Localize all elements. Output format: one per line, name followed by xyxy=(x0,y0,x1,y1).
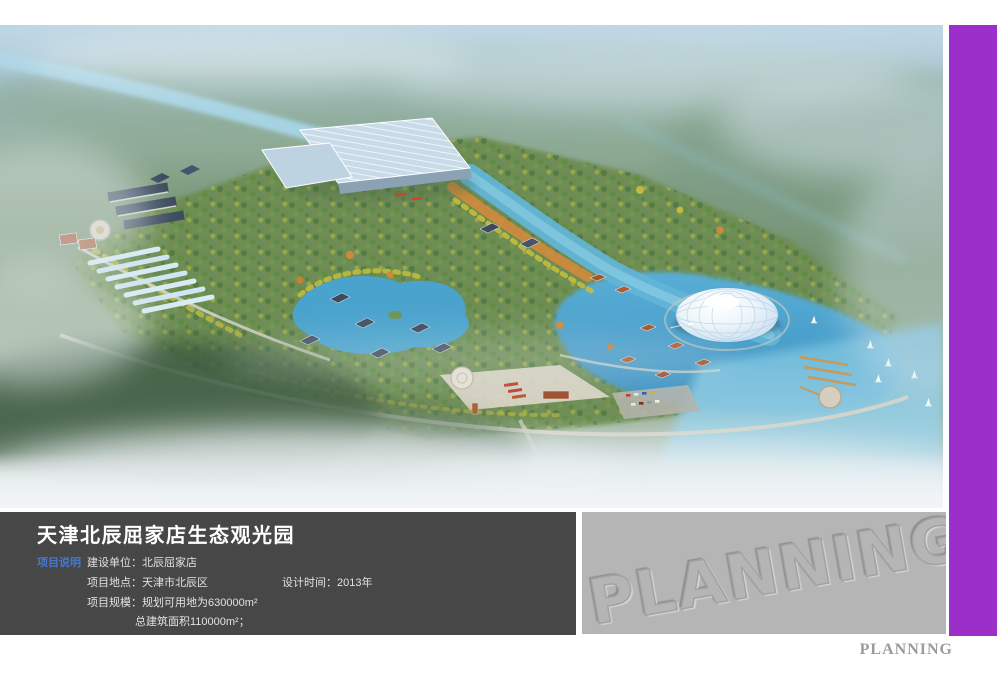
field-location-value: 天津市北辰区 xyxy=(142,577,208,589)
embossed-planning-watermark: PLANNING xyxy=(582,512,946,634)
accent-bar xyxy=(949,25,997,636)
field-location: 项目地点：天津市北辰区 xyxy=(87,574,208,590)
section-label: 项目说明 xyxy=(37,554,81,570)
field-construction-unit: 建设单位：北辰屈家店 xyxy=(87,554,197,570)
footer-planning-text: PLANNING xyxy=(860,641,953,659)
field-design-time-value: 2013年 xyxy=(337,577,372,589)
field-design-time: 设计时间：2013年 xyxy=(282,574,372,590)
aerial-rendering xyxy=(0,25,943,508)
page-title: 天津北辰屈家店生态观光园 xyxy=(37,519,295,548)
field-project-scale-value: 规划可用地为630000m² xyxy=(142,597,258,609)
field-total-area-value: 总建筑面积110000m²； xyxy=(135,616,250,628)
field-total-area: 总建筑面积110000m²； xyxy=(135,613,250,629)
field-location-label: 项目地点： xyxy=(87,577,142,589)
field-construction-unit-value: 北辰屈家店 xyxy=(142,557,197,569)
project-info-panel: 天津北辰屈家店生态观光园 项目说明 建设单位：北辰屈家店 项目地点：天津市北辰区… xyxy=(0,512,576,635)
field-project-scale: 项目规模：规划可用地为630000m² xyxy=(87,594,258,610)
watermark-box: PLANNING xyxy=(582,512,946,634)
field-design-time-label: 设计时间： xyxy=(282,577,337,589)
field-project-scale-label: 项目规模： xyxy=(87,597,142,609)
field-construction-unit-label: 建设单位： xyxy=(87,557,142,569)
